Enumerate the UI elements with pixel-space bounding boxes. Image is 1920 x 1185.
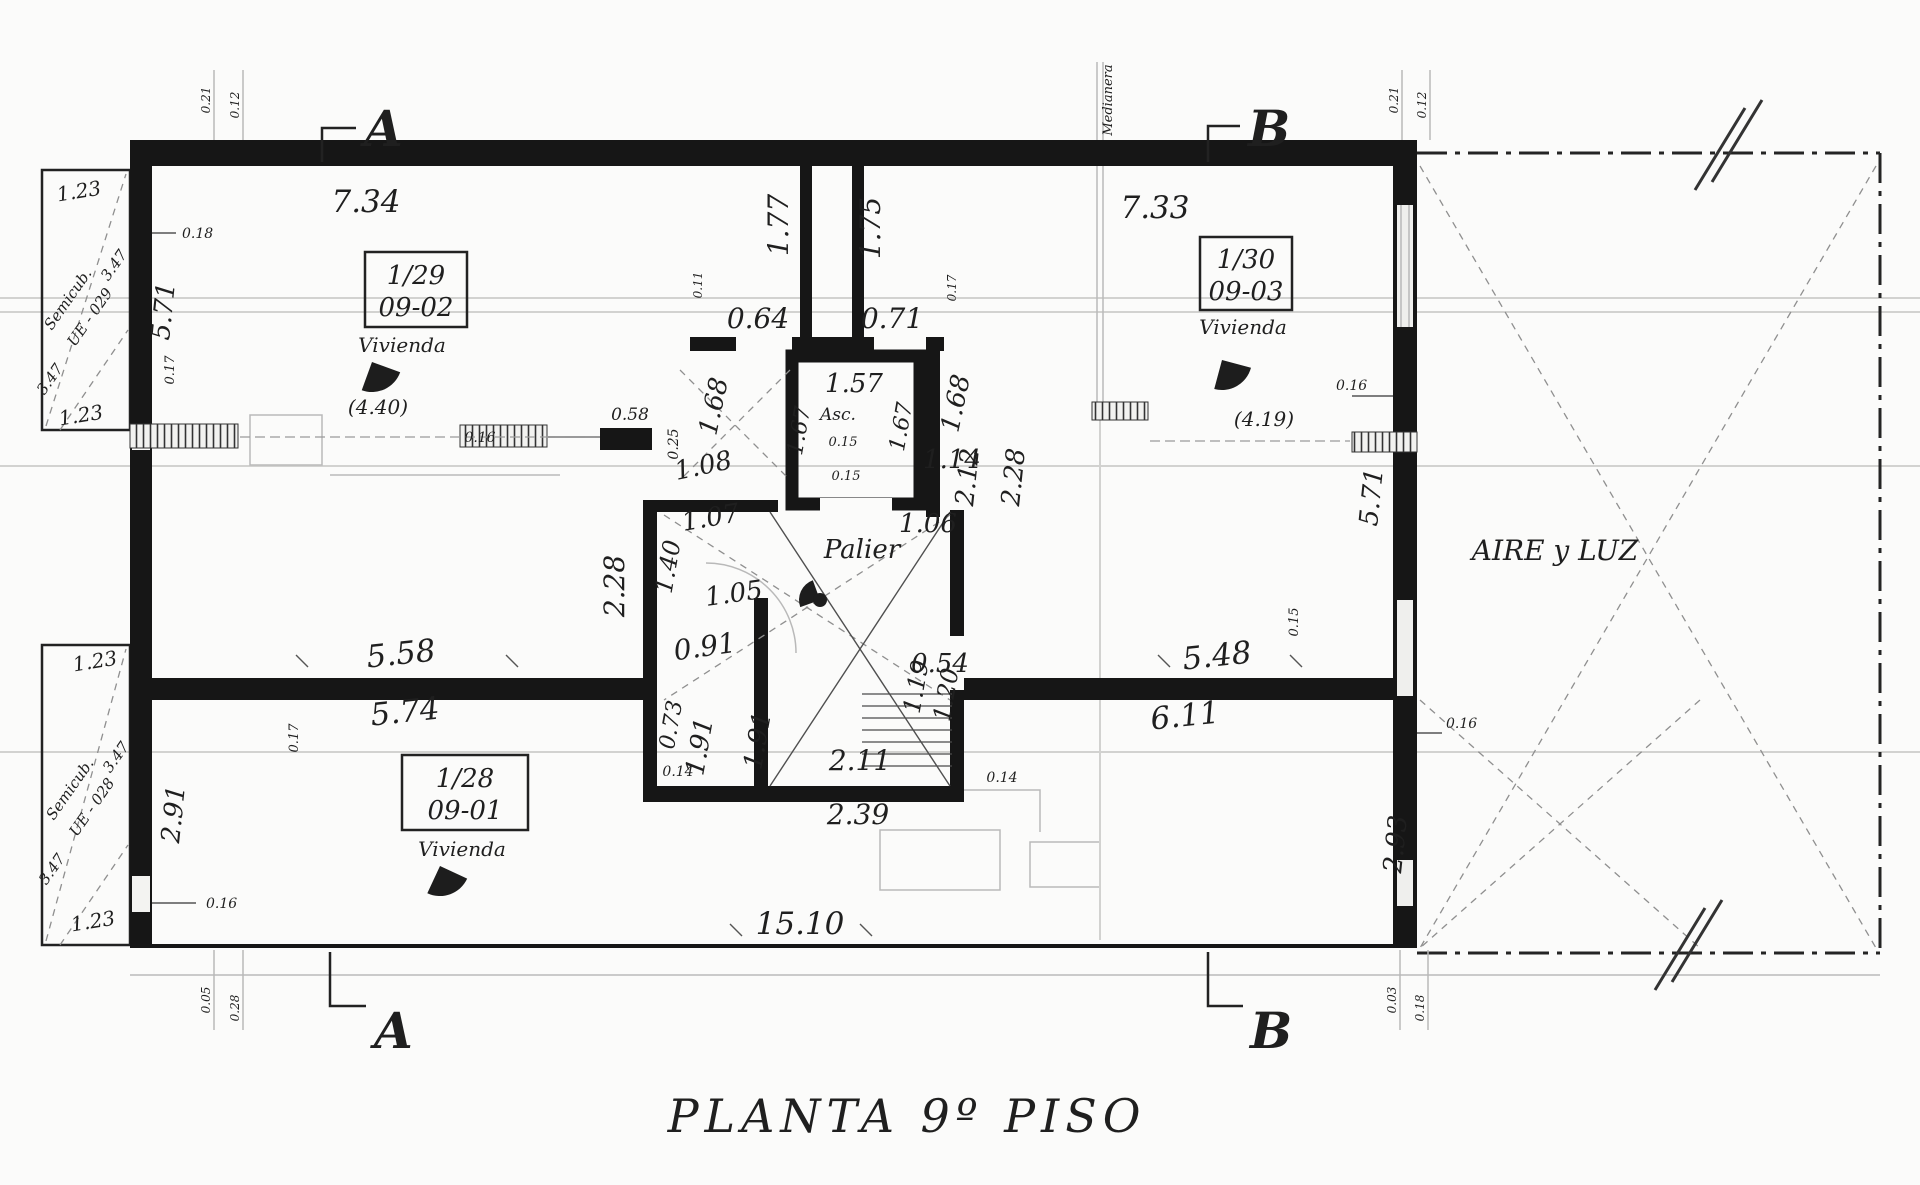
dim-thk-top-left: 0.18 <box>182 226 213 242</box>
window-sill-left <box>130 424 238 448</box>
unit-30-lot: 1/30 <box>1217 245 1275 275</box>
window-sill-right <box>1352 432 1417 452</box>
unit-30-type: Vivienda <box>1199 315 1287 339</box>
dim-entry-left: 0.64 <box>727 302 789 335</box>
section-a-bottom: A <box>370 1001 413 1060</box>
dim-corner-tl-a: 0.21 <box>199 87 213 114</box>
dim-thk-bottom-left: 0.16 <box>206 896 237 912</box>
dim-mid-right-bottom: 6.11 <box>1149 695 1221 738</box>
dim-palier-right: 1.06 <box>899 509 957 539</box>
section-b-bottom: B <box>1248 1001 1292 1060</box>
break-mark-bottom <box>1655 900 1722 990</box>
dim-stair-right-a: 2.12 <box>950 447 986 509</box>
dim-mid-left-top: 5.58 <box>365 633 437 676</box>
dim-thin-b: 0.14 <box>986 770 1017 786</box>
dim-elev-width: 1.57 <box>825 369 883 399</box>
dim-pier-thick: 0.25 <box>666 428 682 459</box>
dim-prot-u-side-b: 3.47 <box>97 246 131 284</box>
dim-mid-right-top: 5.48 <box>1181 635 1253 678</box>
dim-wc-width: 0.91 <box>672 626 738 667</box>
floor-plan-page: AIRE y LUZ Semicub. UE - 029 3.47 3.47 1… <box>0 0 1920 1185</box>
dim-prot-u-bottom: 1.23 <box>57 400 105 431</box>
dim-corridor-left: 1.77 <box>762 194 795 257</box>
dim-prot-u-side-a: 3.47 <box>33 360 67 398</box>
dim-bottom-width: 15.10 <box>756 906 845 942</box>
dim-right-wall-thk2: 0.16 <box>1446 716 1477 732</box>
dim-top-right-width: 7.33 <box>1120 190 1189 226</box>
palier-label: Palier <box>823 535 902 565</box>
dim-right-wall-thk: 0.16 <box>1336 378 1367 394</box>
window-sill-center <box>1092 402 1148 420</box>
dim-corridor-right: 1.75 <box>854 197 887 259</box>
break-mark-top <box>1695 100 1762 190</box>
unit-29-lot: 1/29 <box>387 261 445 291</box>
wall-pier-solid <box>600 428 652 450</box>
dim-elev-wall-b: 0.15 <box>832 469 861 484</box>
dim-wc-left: 0.73 <box>655 699 688 752</box>
dim-mid-tick-right: 0.15 <box>1287 608 1302 637</box>
dim-prot-l-side-a: 3.47 <box>35 850 69 888</box>
dim-corner-br-b: 0.18 <box>1413 994 1427 1021</box>
dim-thk-left-small: 0.17 <box>163 355 178 385</box>
unit-28-code: 09-01 <box>428 796 503 826</box>
unit-label-28: 1/28 09-01 Vivienda <box>402 755 528 861</box>
dim-shaft-tick-left: 0.11 <box>691 272 705 299</box>
dim-right-mid-height: 5.71 <box>1354 467 1390 528</box>
dim-flight-a: 1.91 <box>680 716 720 778</box>
dim-flank-left: 1.68 <box>693 375 734 438</box>
dim-corner-bl-b: 0.28 <box>228 994 242 1021</box>
dim-corner-bl-a: 0.05 <box>199 987 213 1014</box>
dim-mid-tick-left: 0.17 <box>287 723 302 753</box>
door-unit-30 <box>1214 360 1251 397</box>
dim-flight-b: 1.91 <box>738 710 778 772</box>
dim-prot-l-top: 1.23 <box>71 646 119 677</box>
unit-29-code: 09-02 <box>379 293 454 323</box>
dim-elev-wall-a: 0.15 <box>829 435 858 450</box>
light-shaft-area: AIRE y LUZ <box>1417 100 1880 990</box>
dim-corner-tl-b: 0.12 <box>228 92 242 119</box>
dim-core-left-height: 2.28 <box>598 555 631 618</box>
dim-right-lower-height: 2.93 <box>1378 814 1414 876</box>
section-b-top: B <box>1246 99 1290 158</box>
dim-win-left-span: (4.40) <box>348 395 408 419</box>
semicovered-upper: Semicub. UE - 029 3.47 3.47 1.23 1.23 <box>33 170 131 430</box>
unit-28-lot: 1/28 <box>436 764 494 794</box>
party-wall-label: Medianera <box>1101 64 1116 136</box>
dim-prot-l-side-b: 3.47 <box>99 738 133 776</box>
dim-stair-width: 2.11 <box>828 744 891 777</box>
dim-win-inner-thk: 0.16 <box>464 430 495 446</box>
drawing-title: PLANTA 9º PISO <box>667 1089 1147 1143</box>
dim-pier-width: 0.58 <box>611 405 649 425</box>
dim-mid-left-bottom: 5.74 <box>369 691 441 734</box>
unit-29-type: Vivienda <box>358 333 446 357</box>
dim-prot-l-bottom: 1.23 <box>69 906 117 937</box>
unit-label-30: 1/30 09-03 Vivienda <box>1199 237 1292 339</box>
dim-stair-right-b: 2.28 <box>996 447 1032 509</box>
dim-win-right-span: (4.19) <box>1234 407 1294 431</box>
elevator-label: Asc. <box>818 405 856 425</box>
dim-stair-outer: 2.39 <box>826 798 889 831</box>
dim-corner-br-a: 0.03 <box>1385 986 1399 1013</box>
dim-corner-tr-b: 0.12 <box>1415 92 1429 119</box>
dim-flank-right: 1.68 <box>935 372 976 435</box>
floor-plan-drawing: AIRE y LUZ Semicub. UE - 029 3.47 3.47 1… <box>0 0 1920 1185</box>
dim-prot-u-top: 1.23 <box>55 176 103 207</box>
dim-corner-tr-a: 0.21 <box>1387 87 1401 114</box>
door-unit-28 <box>427 866 467 906</box>
unit-label-29: 1/29 09-02 Vivienda <box>358 252 467 357</box>
semicovered-lower: Semicub. UE - 028 3.47 3.47 1.23 1.23 <box>35 645 133 945</box>
dim-shaft-tick-right: 0.17 <box>945 274 959 301</box>
light-shaft-label: AIRE y LUZ <box>1469 534 1639 567</box>
dim-elev-depth-right: 1.67 <box>885 401 918 454</box>
rotated-dimension-texts: 1.77 1.75 1.68 1.68 1.67 1.67 0.25 2.28 … <box>146 87 1429 1022</box>
party-wall-line: Medianera <box>1097 62 1116 940</box>
section-a-top: A <box>360 99 403 158</box>
dim-left-lower-height: 2.91 <box>156 784 192 846</box>
dim-top-left-width: 7.34 <box>331 184 400 220</box>
unit-28-type: Vivienda <box>418 837 506 861</box>
dim-left-upper-height: 5.71 <box>146 281 182 342</box>
dim-entry-right: 0.71 <box>861 302 923 335</box>
unit-30-code: 09-03 <box>1209 277 1284 307</box>
